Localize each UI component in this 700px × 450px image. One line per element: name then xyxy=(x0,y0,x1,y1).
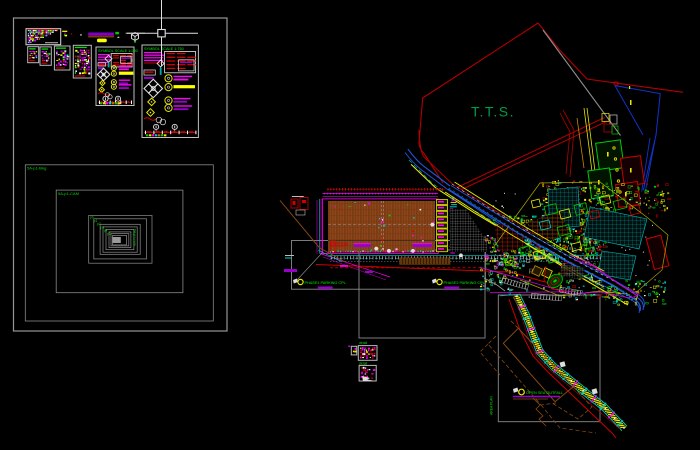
svg-text:SYMBOL SCALE 1:250: SYMBOL SCALE 1:250 xyxy=(98,49,138,53)
svg-text:5A-p1-blkg: 5A-p1-blkg xyxy=(27,166,46,171)
svg-text:5A-p1-cam: 5A-p1-cam xyxy=(133,229,137,246)
svg-text:AREA PLAN: AREA PLAN xyxy=(490,396,494,415)
svg-text:5A-p1-CAM: 5A-p1-CAM xyxy=(58,191,79,196)
svg-text:PHASE1 PARKING CPL.: PHASE1 PARKING CPL. xyxy=(305,281,347,285)
svg-text:T.T.S.: T.T.S. xyxy=(471,104,515,120)
svg-text:detail: detail xyxy=(359,341,367,345)
svg-text:OPEN SEA OUTFALL: OPEN SEA OUTFALL xyxy=(526,391,563,395)
svg-text:PHASE2 PARKING CPL.: PHASE2 PARKING CPL. xyxy=(444,281,486,285)
svg-text:p5: p5 xyxy=(107,232,111,236)
svg-text:SYMBOL SCALE 1:750: SYMBOL SCALE 1:750 xyxy=(144,47,184,51)
